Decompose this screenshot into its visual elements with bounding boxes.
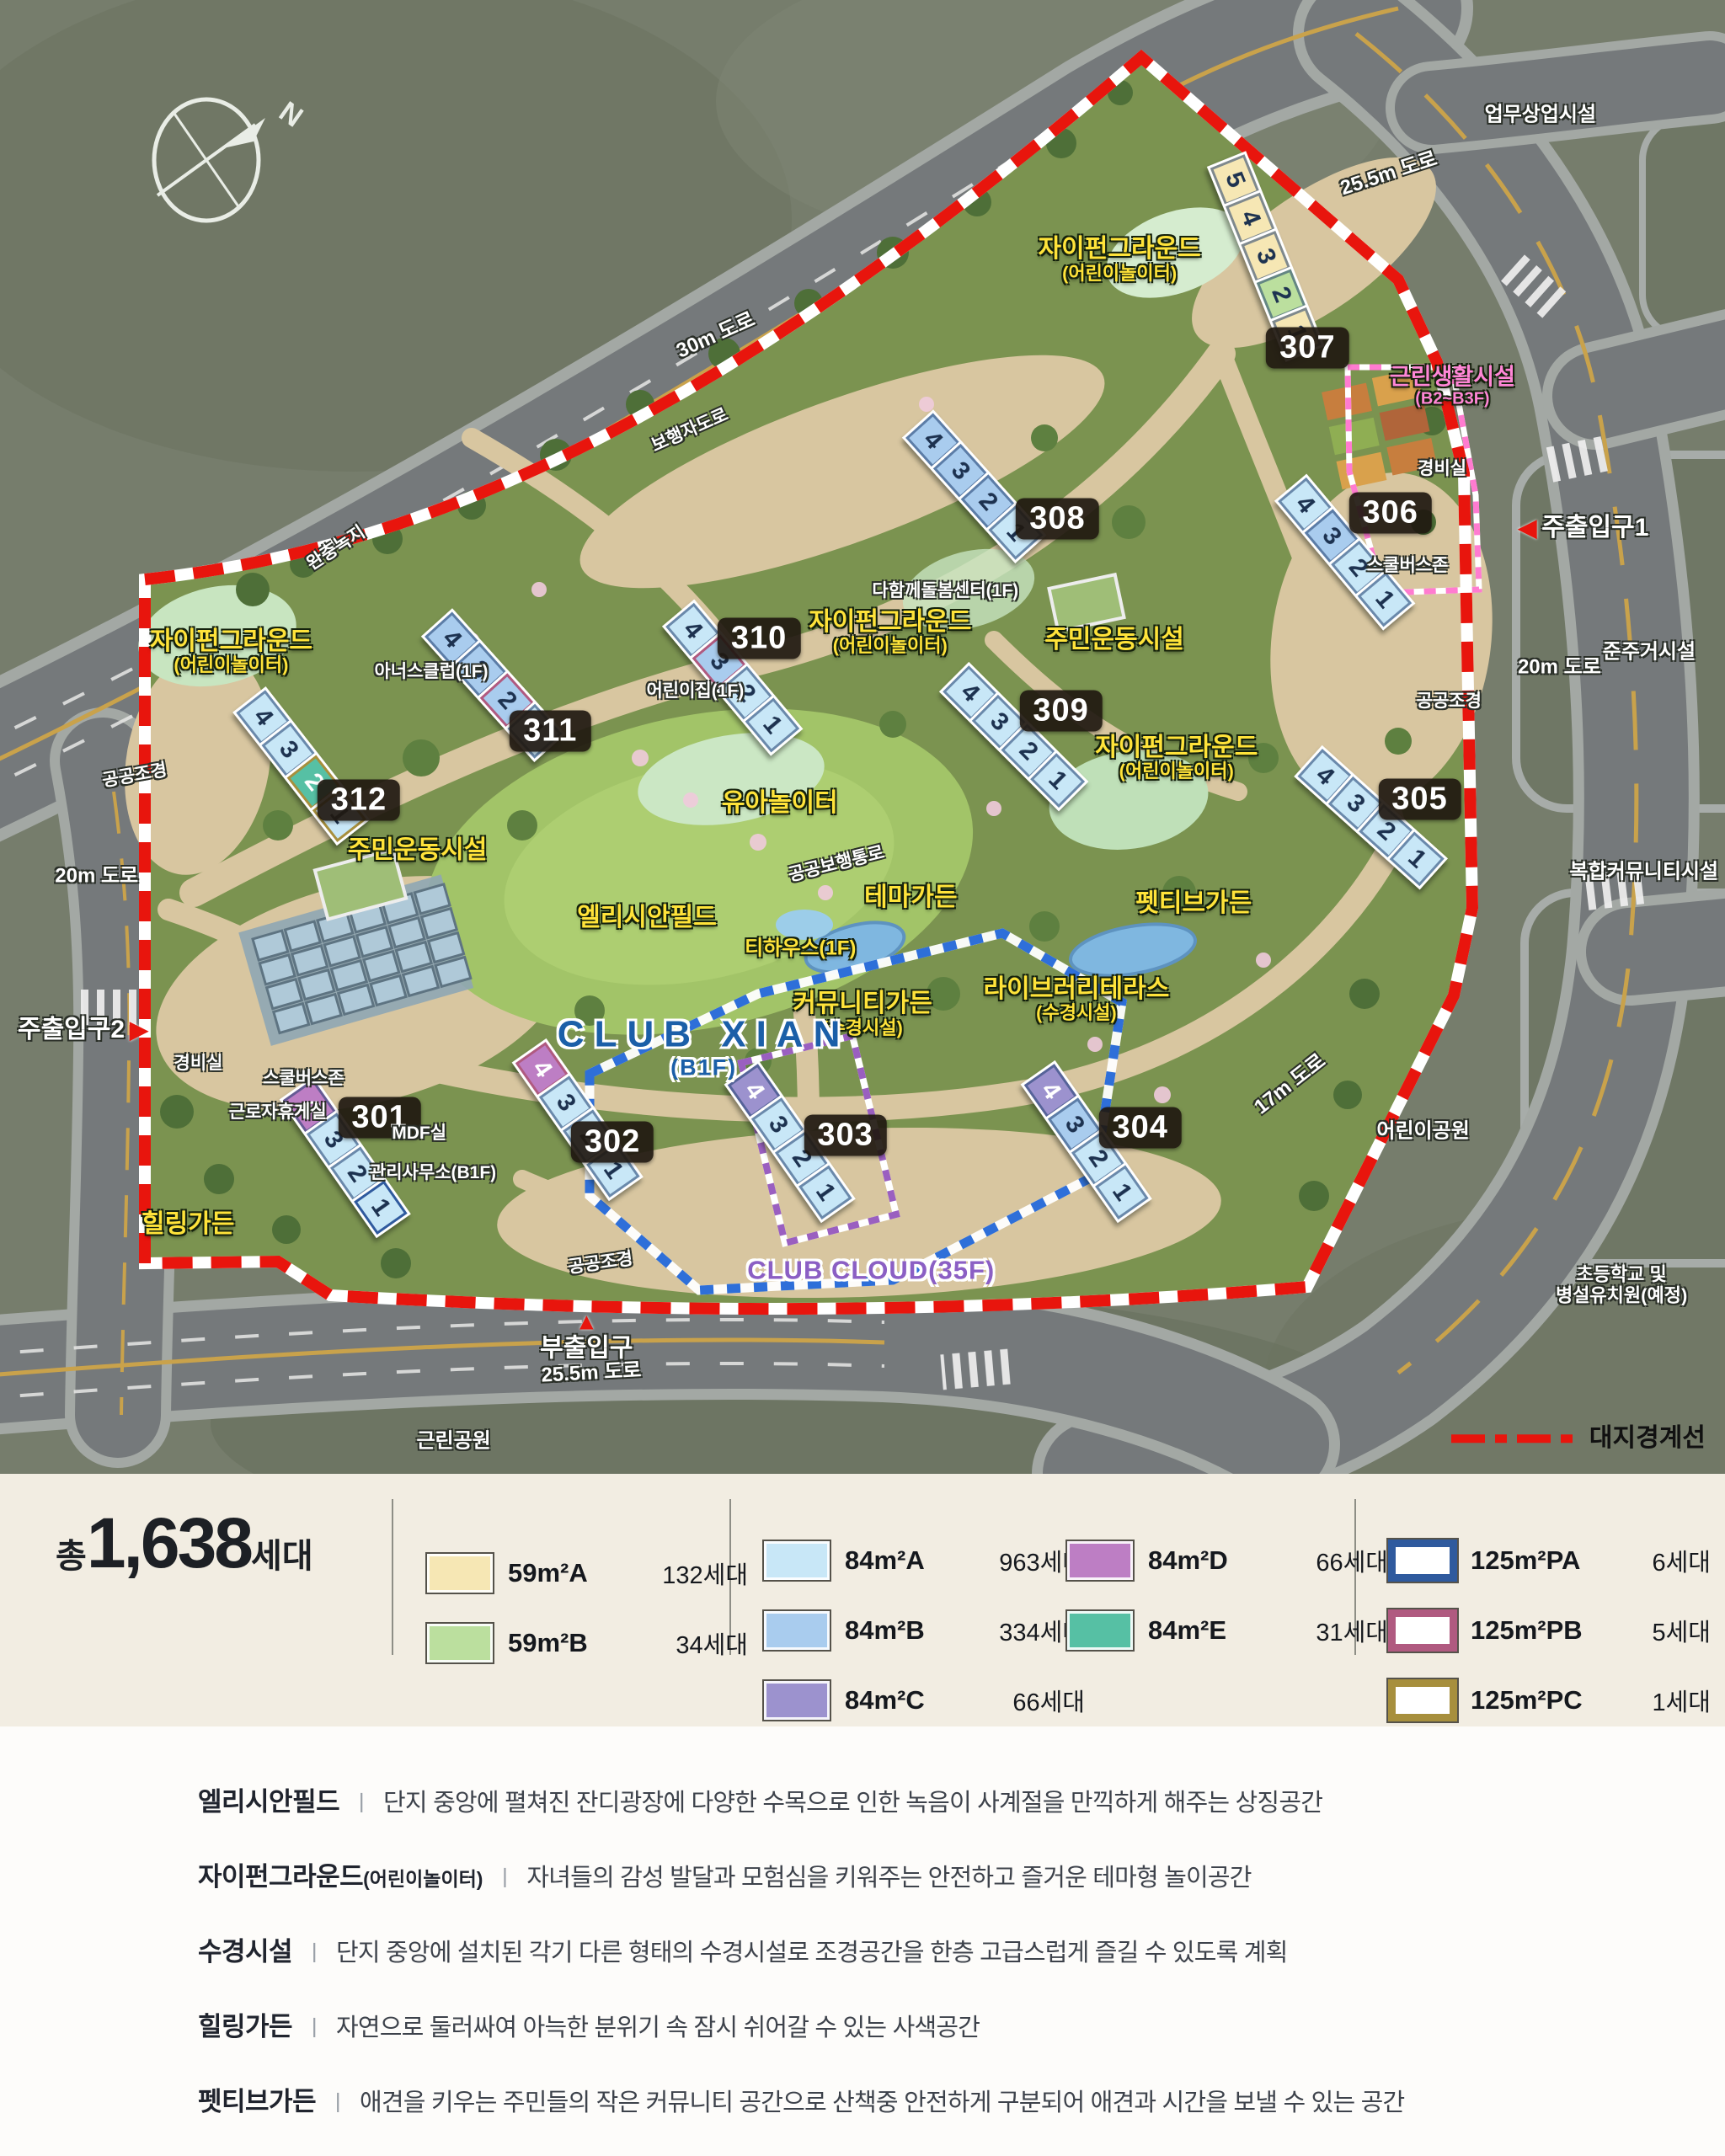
tea-house-text: 티하우스(1F) xyxy=(745,937,856,960)
daycare-together-center-text: 다함께돌봄센터(1F) xyxy=(872,581,1018,600)
unit-legend-band: 총 1,638 세대 59m²A132세대59m²B34세대84m²A963세대… xyxy=(0,1474,1725,1726)
map-label-road-20m-east: 20m 도로 xyxy=(1518,656,1601,679)
map-label-club-xian: CLUB XIAN(B1F) xyxy=(558,1013,851,1081)
public-landscape-south-text: 공공조경 xyxy=(567,1249,634,1278)
elementary-school-planned-text: 초등학교 및 xyxy=(1576,1263,1666,1284)
children-park-text: 어린이공원 xyxy=(1376,1120,1469,1143)
gate-label: 부출입구 xyxy=(540,1334,633,1363)
legend-swatch xyxy=(1388,1679,1457,1721)
xi-fun-ground-center-subtext: (어린이놀이터) xyxy=(809,636,971,657)
description-separator: ㅣ xyxy=(328,2086,348,2117)
school-bus-zone-west-text: 스쿨버스존 xyxy=(263,1069,344,1088)
map-label-district-business-commercial: 업무상업시설 xyxy=(1485,104,1596,126)
honors-club-text: 아너스클럽(1F) xyxy=(374,662,488,681)
legend-swatch xyxy=(762,1609,831,1652)
legend-unit-count: 31세대 xyxy=(1274,1613,1388,1648)
school-bus-zone-east-text: 스쿨버스존 xyxy=(1367,556,1449,575)
map-label-road-25-5m-top: 25.5m 도로 xyxy=(1338,147,1439,200)
map-label-mixed-community-facility: 복합커뮤니티시설 xyxy=(1569,862,1718,884)
road-25-5m-bottom-text: 25.5m 도로 xyxy=(541,1358,642,1386)
map-label-school-bus-zone-west: 스쿨버스존 xyxy=(263,1069,344,1089)
legend-unit-type: 125m²PB xyxy=(1471,1615,1597,1646)
legend-unit-type: 84m²A xyxy=(845,1545,971,1576)
gate-arrow-icon: ▲ xyxy=(574,1308,598,1334)
semi-residential-facility-text: 준주거시설 xyxy=(1603,641,1696,664)
description-title: 펫티브가든 xyxy=(198,2080,316,2118)
description-separator: ㅣ xyxy=(494,1861,515,1892)
worker-lounge-text: 근로자휴게실 xyxy=(229,1102,327,1122)
legend-unit-count: 5세대 xyxy=(1597,1613,1711,1648)
road-17m-text: 17m 도로 xyxy=(1250,1049,1330,1118)
xi-fun-ground-west-subtext: (어린이놀이터) xyxy=(150,655,312,676)
map-labels-layer: 업무상업시설25.5m 도로30m 도로보행자도로완충녹지자이펀그라운드(어린이… xyxy=(0,0,1725,1474)
map-label-gate-main-1: ◀주출입구1 xyxy=(1519,514,1649,542)
total-suffix: 세대 xyxy=(251,1529,313,1577)
total-households: 총 1,638 세대 xyxy=(56,1508,313,1578)
map-label-healing-garden: 힐링가든 xyxy=(142,1210,234,1239)
map-label-elysian-field: 엘리시안필드 xyxy=(577,904,717,932)
residents-sports-facility-east-text: 주민운동시설 xyxy=(1044,626,1184,654)
legend-item-125mPC: 125m²PC1세대 xyxy=(1388,1679,1711,1721)
gate-arrow-icon: ▶ xyxy=(130,1017,148,1043)
road-20m-west-text: 20m 도로 xyxy=(55,865,138,888)
description-title: 자이펀그라운드 xyxy=(198,1855,363,1893)
description-title: 힐링가든 xyxy=(198,2005,292,2043)
public-landscape-west-text: 공공조경 xyxy=(101,760,168,790)
map-label-pettiv-garden: 펫티브가든 xyxy=(1135,889,1252,918)
map-label-xi-fun-ground-southeast: 자이펀그라운드(어린이놀이터) xyxy=(1095,733,1258,782)
map-label-site-boundary-legend: 대지경계선 xyxy=(1451,1424,1706,1453)
map-label-daycare-together-center: 다함께돌봄센터(1F) xyxy=(872,581,1018,601)
legend-swatch xyxy=(425,1622,494,1664)
legend-unit-type: 125m²PC xyxy=(1471,1685,1597,1716)
theme-garden-text: 테마가든 xyxy=(864,883,957,911)
legend-item-59mB: 59m²B34세대 xyxy=(425,1622,748,1664)
gate-label: 주출입구2 xyxy=(18,1016,125,1044)
description-row-0: 엘리시안필드ㅣ단지 중앙에 펼쳐진 잔디광장에 다양한 수목으로 인한 녹음이 … xyxy=(198,1780,1725,1818)
legend-unit-count: 6세대 xyxy=(1597,1543,1711,1578)
map-label-childcare-center: 어린이집(1F) xyxy=(646,681,744,702)
legend-unit-count: 66세대 xyxy=(1274,1543,1388,1578)
map-label-road-pedestrian: 보행자도로 xyxy=(649,405,731,456)
guard-post-northeast-text: 경비실 xyxy=(1418,459,1466,478)
map-label-gate-main-2: 주출입구2▶ xyxy=(18,1016,148,1044)
legend-unit-type: 84m²B xyxy=(845,1615,971,1646)
library-terrace-subtext: (수경시설) xyxy=(984,1003,1170,1024)
gate-arrow-icon: ◀ xyxy=(1519,515,1537,541)
map-label-school-bus-zone-east: 스쿨버스존 xyxy=(1367,556,1449,576)
legend-unit-count: 132세대 xyxy=(634,1556,748,1591)
map-label-public-landscape-east: 공공조경 xyxy=(1417,691,1482,712)
description-row-2: 수경시설ㅣ단지 중앙에 설치된 각기 다른 형태의 수경시설로 조경공간을 한층… xyxy=(198,1930,1725,1968)
legend-unit-type: 125m²PA xyxy=(1471,1545,1597,1576)
map-label-xi-fun-ground-center: 자이펀그라운드(어린이놀이터) xyxy=(809,608,971,657)
elementary-school-planned-subtext: 병설유치원(예정) xyxy=(1556,1285,1687,1306)
library-terrace-text: 라이브러리테라스 xyxy=(984,974,1170,1002)
xi-fun-ground-center-text: 자이펀그라운드 xyxy=(809,608,971,636)
neighborhood-living-facility-text: 근린생활시설 xyxy=(1390,364,1515,389)
map-label-semi-residential-facility: 준주거시설 xyxy=(1603,642,1696,664)
public-landscape-east-text: 공공조경 xyxy=(1417,691,1482,711)
map-label-residents-sports-facility-west: 주민운동시설 xyxy=(348,836,488,865)
map-label-xi-fun-ground-north: 자이펀그라운드(어린이놀이터) xyxy=(1039,235,1201,284)
site-plan-page: N 43213014321302432130343213044321305432… xyxy=(0,0,1725,2156)
legend-unit-count: 66세대 xyxy=(971,1683,1085,1718)
legend-item-84mC: 84m²C66세대 xyxy=(762,1679,1085,1721)
map-label-library-terrace: 라이브러리테라스(수경시설) xyxy=(984,974,1170,1023)
toddler-playground-text: 유아놀이터 xyxy=(722,789,838,817)
map-label-theme-garden: 테마가든 xyxy=(864,883,957,912)
map-label-management-office: 관리사무소(B1F) xyxy=(370,1163,496,1183)
description-body: 단지 중앙에 설치된 각기 다른 형태의 수경시설로 조경공간을 한층 고급스럽… xyxy=(336,1933,1288,1968)
legend-divider-0 xyxy=(392,1499,393,1655)
description-title: 엘리시안필드 xyxy=(198,1780,339,1818)
legend-swatch xyxy=(1388,1540,1457,1582)
map-label-road-30m: 30m 도로 xyxy=(673,309,758,364)
map-label-elementary-school-planned: 초등학교 및병설유치원(예정) xyxy=(1556,1264,1687,1305)
legend-unit-count: 34세대 xyxy=(634,1625,748,1661)
description-row-3: 힐링가든ㅣ자연으로 둘러싸여 아늑한 분위기 속 잠시 쉬어갈 수 있는 사색공… xyxy=(198,2005,1725,2043)
boundary-legend-label: 대지경계선 xyxy=(1589,1424,1706,1453)
map-label-guard-post-northeast: 경비실 xyxy=(1418,459,1466,479)
legend-item-84mA: 84m²A963세대 xyxy=(762,1540,1085,1582)
xi-fun-ground-southeast-subtext: (어린이놀이터) xyxy=(1095,761,1258,782)
map-label-neighborhood-park: 근린공원 xyxy=(416,1430,490,1453)
xi-fun-ground-west-text: 자이펀그라운드 xyxy=(150,627,312,654)
legend-swatch xyxy=(425,1552,494,1594)
mixed-community-facility-text: 복합커뮤니티시설 xyxy=(1569,861,1718,883)
club-xian-text: CLUB XIAN xyxy=(558,1013,851,1054)
xi-fun-ground-southeast-text: 자이펀그라운드 xyxy=(1095,733,1258,760)
map-label-toddler-playground: 유아놀이터 xyxy=(722,789,838,818)
residents-sports-facility-west-text: 주민운동시설 xyxy=(348,836,488,864)
road-pedestrian-text: 보행자도로 xyxy=(649,405,731,456)
map-label-public-walkway: 공공보행통로 xyxy=(787,842,886,885)
legend-item-59mA: 59m²A132세대 xyxy=(425,1552,748,1594)
management-office-text: 관리사무소(B1F) xyxy=(370,1163,496,1182)
site-plan-map: N 43213014321302432130343213044321305432… xyxy=(0,0,1725,1474)
club-cloud-text: CLUB CLOUD(35F) xyxy=(747,1255,995,1284)
description-title: 수경시설 xyxy=(198,1930,292,1968)
description-body: 단지 중앙에 펼쳐진 잔디광장에 다양한 수목으로 인한 녹음이 사계절을 만끽… xyxy=(383,1783,1322,1818)
legend-swatch xyxy=(1388,1609,1457,1652)
map-label-club-cloud: CLUB CLOUD(35F) xyxy=(747,1256,995,1285)
healing-garden-text: 힐링가든 xyxy=(142,1210,234,1238)
map-label-worker-lounge: 근로자휴게실 xyxy=(229,1102,327,1123)
legend-item-84mB: 84m²B334세대 xyxy=(762,1609,1085,1652)
club-xian-subtext: (B1F) xyxy=(558,1054,851,1080)
road-20m-east-text: 20m 도로 xyxy=(1518,655,1601,678)
district-business-commercial-text: 업무상업시설 xyxy=(1485,103,1596,125)
xi-fun-ground-north-text: 자이펀그라운드 xyxy=(1039,235,1201,263)
legend-swatch xyxy=(1065,1609,1135,1652)
description-separator: ㅣ xyxy=(351,1786,371,1817)
mdf-room-text: MDF실 xyxy=(392,1123,446,1143)
map-label-public-landscape-south: 공공조경 xyxy=(567,1249,634,1278)
legend-item-84mD: 84m²D66세대 xyxy=(1065,1540,1388,1582)
map-label-road-17m: 17m 도로 xyxy=(1251,1050,1330,1119)
elysian-field-text: 엘리시안필드 xyxy=(577,904,717,931)
map-label-children-park: 어린이공원 xyxy=(1376,1121,1469,1144)
legend-item-84mE: 84m²E31세대 xyxy=(1065,1609,1388,1652)
map-label-honors-club: 아너스클럽(1F) xyxy=(374,662,488,682)
xi-fun-ground-north-subtext: (어린이놀이터) xyxy=(1039,263,1201,284)
neighborhood-living-facility-subtext: (B2~B3F) xyxy=(1390,389,1515,408)
total-value: 1,638 xyxy=(87,1508,251,1578)
amenity-descriptions: 엘리시안필드ㅣ단지 중앙에 펼쳐진 잔디광장에 다양한 수목으로 인한 녹음이 … xyxy=(0,1726,1725,2156)
description-body: 자녀들의 감성 발달과 모험심을 키워주는 안전하고 즐거운 테마형 놀이공간 xyxy=(526,1858,1251,1893)
boundary-line-sample xyxy=(1451,1433,1578,1444)
childcare-center-text: 어린이집(1F) xyxy=(646,681,744,701)
legend-swatch xyxy=(762,1679,831,1721)
description-row-1: 자이펀그라운드(어린이놀이터)ㅣ자녀들의 감성 발달과 모험심을 키워주는 안전… xyxy=(198,1855,1725,1893)
description-body: 자연으로 둘러싸여 아늑한 분위기 속 잠시 쉬어갈 수 있는 사색공간 xyxy=(336,2008,980,2043)
description-row-4: 펫티브가든ㅣ애견을 키우는 주민들의 작은 커뮤니티 공간으로 산책중 안전하게… xyxy=(198,2080,1725,2118)
pettiv-garden-text: 펫티브가든 xyxy=(1135,889,1252,917)
map-label-public-landscape-west: 공공조경 xyxy=(101,760,168,791)
map-label-xi-fun-ground-west: 자이펀그라운드(어린이놀이터) xyxy=(150,627,312,675)
public-walkway-text: 공공보행통로 xyxy=(787,842,886,884)
map-label-residents-sports-facility-east: 주민운동시설 xyxy=(1044,626,1184,654)
green-buffer-text: 완충녹지 xyxy=(304,522,369,574)
map-label-mdf-room: MDF실 xyxy=(392,1123,446,1144)
legend-unit-type: 59m²A xyxy=(508,1558,634,1588)
map-label-road-20m-west: 20m 도로 xyxy=(55,866,138,889)
map-label-green-buffer: 완충녹지 xyxy=(304,522,370,574)
guard-post-west-text: 경비실 xyxy=(174,1054,223,1074)
total-prefix: 총 xyxy=(56,1529,87,1577)
map-label-gate-sub: ▲부출입구 xyxy=(540,1308,633,1363)
description-body: 애견을 키우는 주민들의 작은 커뮤니티 공간으로 산책중 안전하게 구분되어 … xyxy=(360,2083,1404,2118)
road-30m-text: 30m 도로 xyxy=(673,308,758,363)
map-label-road-25-5m-bottom: 25.5m 도로 xyxy=(541,1359,642,1387)
description-title-sub: (어린이놀이터) xyxy=(363,1863,483,1892)
neighborhood-park-text: 근린공원 xyxy=(416,1429,490,1452)
legend-item-125mPB: 125m²PB5세대 xyxy=(1388,1609,1711,1652)
map-label-tea-house: 티하우스(1F) xyxy=(745,938,856,961)
map-label-guard-post-west: 경비실 xyxy=(174,1054,223,1075)
legend-unit-type: 84m²E xyxy=(1148,1615,1274,1646)
legend-unit-count: 1세대 xyxy=(1597,1683,1711,1718)
gate-label: 주출입구1 xyxy=(1541,514,1648,542)
description-separator: ㅣ xyxy=(304,2011,324,2042)
road-25-5m-top-text: 25.5m 도로 xyxy=(1338,147,1439,199)
legend-unit-type: 59m²B xyxy=(508,1628,634,1658)
description-separator: ㅣ xyxy=(304,1936,324,1967)
map-label-neighborhood-living-facility: 근린생활시설(B2~B3F) xyxy=(1390,364,1515,408)
legend-swatch xyxy=(762,1540,831,1582)
legend-item-125mPA: 125m²PA6세대 xyxy=(1388,1540,1711,1582)
legend-unit-type: 84m²C xyxy=(845,1685,971,1716)
legend-unit-type: 84m²D xyxy=(1148,1545,1274,1576)
legend-swatch xyxy=(1065,1540,1135,1582)
